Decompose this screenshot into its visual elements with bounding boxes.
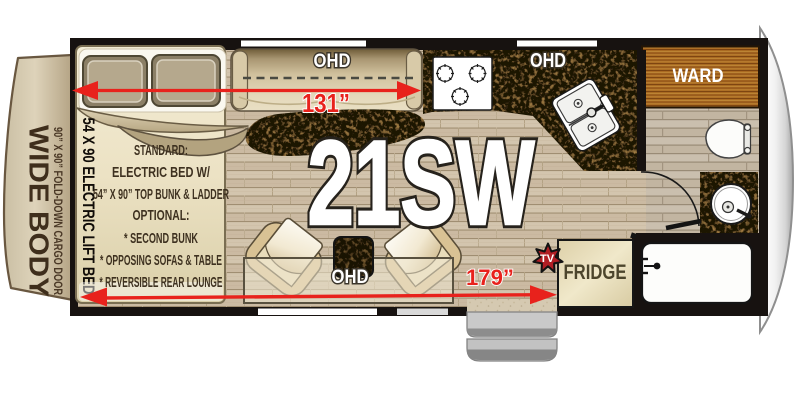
svg-text:* SECOND BUNK: * SECOND BUNK	[124, 230, 198, 247]
svg-text:90” X 90” FOLD-DOWN CARGO DOOR: 90” X 90” FOLD-DOWN CARGO DOOR	[51, 127, 65, 295]
svg-text:OHD: OHD	[332, 267, 369, 288]
svg-text:21SW: 21SW	[308, 116, 536, 250]
svg-text:FRIDGE: FRIDGE	[564, 261, 627, 284]
svg-text:OHD: OHD	[314, 51, 351, 72]
svg-text:ELECTRIC BED W/: ELECTRIC BED W/	[112, 164, 211, 181]
svg-text:131”: 131”	[302, 88, 350, 118]
svg-text:TV: TV	[540, 253, 555, 265]
svg-text:54” X 90” TOP BUNK & LADDER: 54” X 90” TOP BUNK & LADDER	[93, 186, 229, 203]
svg-text:OPTIONAL:: OPTIONAL:	[133, 207, 190, 224]
svg-text:WIDE BODY: WIDE BODY	[24, 125, 55, 297]
svg-text:STANDARD:: STANDARD:	[134, 142, 188, 159]
svg-text:179”: 179”	[466, 265, 514, 290]
svg-text:* REVERSIBLE REAR LOUNGE: * REVERSIBLE REAR LOUNGE	[100, 274, 223, 291]
svg-text:WARD: WARD	[673, 65, 724, 87]
svg-text:54 X 90 ELECTRIC LIFT BED: 54 X 90 ELECTRIC LIFT BED	[79, 118, 98, 295]
svg-text:OHD: OHD	[530, 50, 566, 72]
svg-text:* OPPOSING SOFAS & TABLE: * OPPOSING SOFAS & TABLE	[100, 252, 222, 269]
